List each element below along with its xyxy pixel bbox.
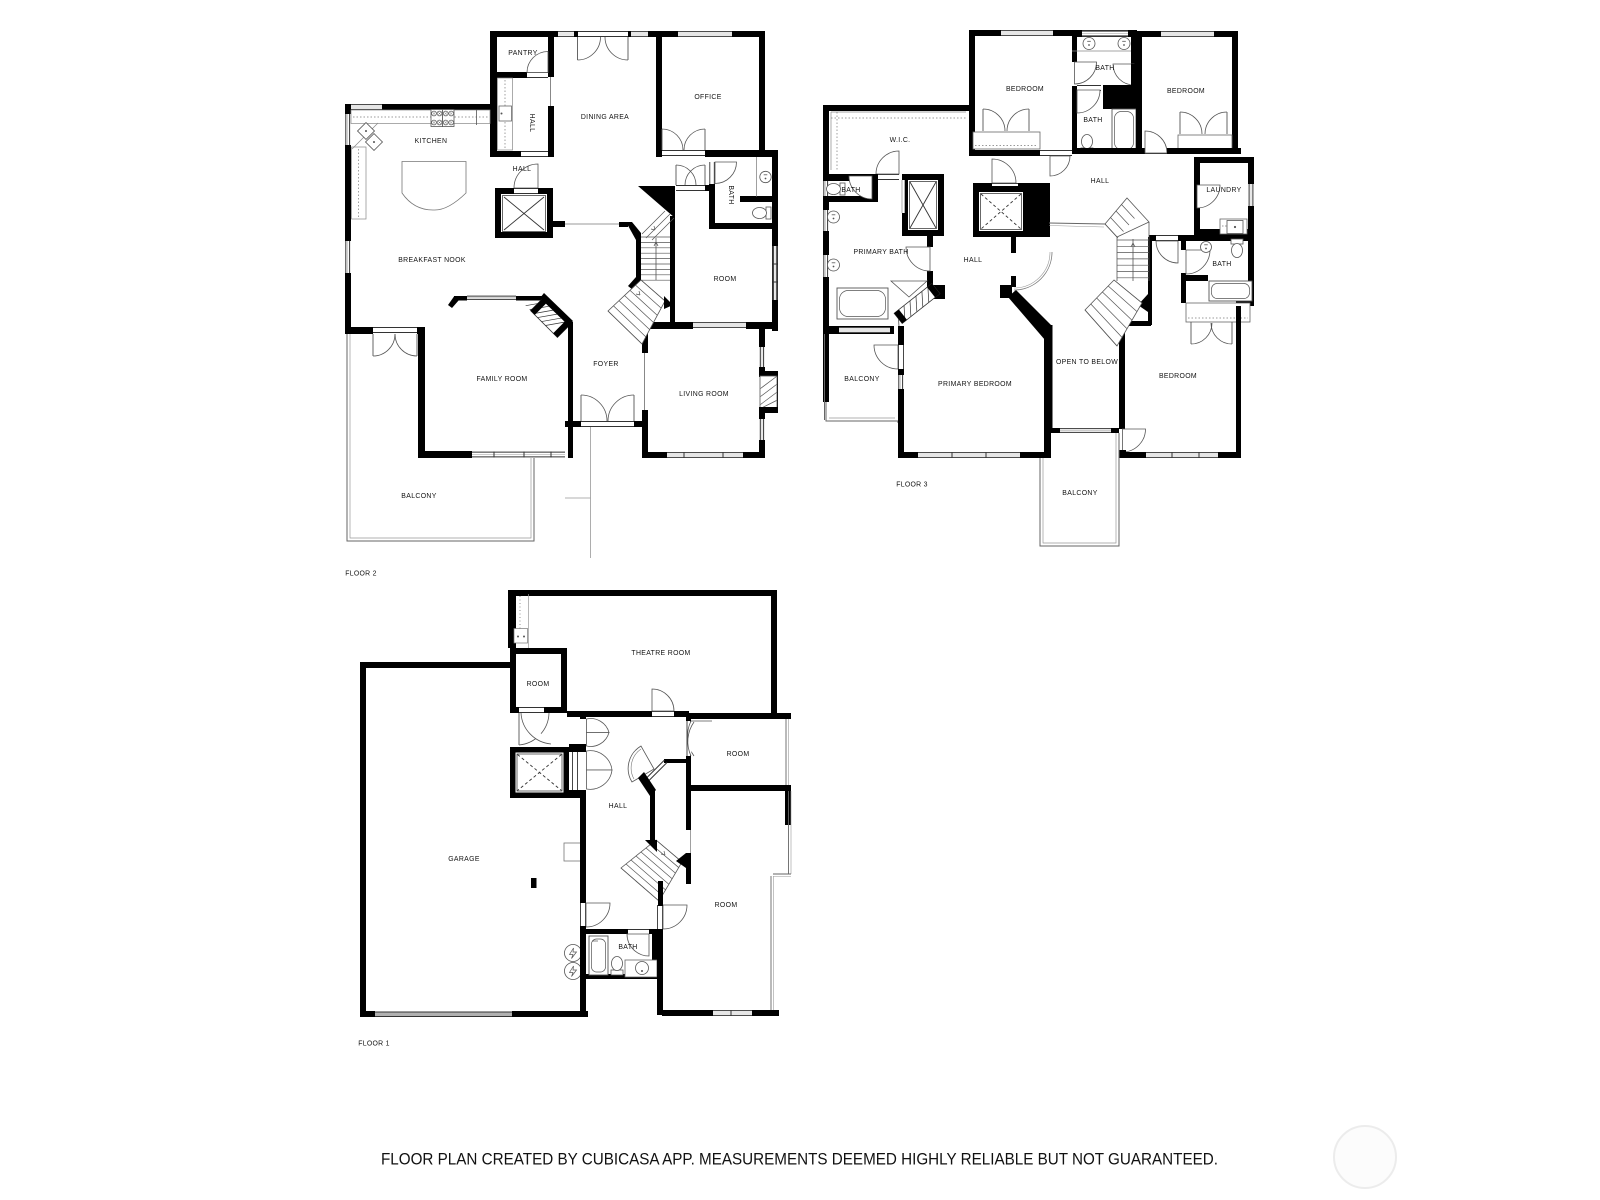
svg-text:BATH: BATH bbox=[618, 944, 637, 951]
svg-text:PANTRY: PANTRY bbox=[508, 50, 537, 57]
svg-text:HALL: HALL bbox=[964, 257, 983, 264]
svg-text:BEDROOM: BEDROOM bbox=[1006, 86, 1044, 93]
svg-text:BATH: BATH bbox=[841, 187, 860, 194]
svg-text:ROOM: ROOM bbox=[727, 751, 750, 758]
svg-text:FLOOR 2: FLOOR 2 bbox=[345, 571, 377, 578]
svg-text:HALL: HALL bbox=[528, 114, 535, 133]
svg-text:FLOOR PLAN CREATED BY CUBICASA: FLOOR PLAN CREATED BY CUBICASA APP. MEAS… bbox=[381, 1150, 1218, 1169]
svg-text:HALL: HALL bbox=[609, 803, 628, 810]
svg-text:BEDROOM: BEDROOM bbox=[1159, 373, 1197, 380]
svg-text:BALCONY: BALCONY bbox=[401, 493, 436, 500]
svg-text:BALCONY: BALCONY bbox=[844, 376, 879, 383]
svg-text:LIVING ROOM: LIVING ROOM bbox=[679, 391, 729, 398]
svg-text:HALL: HALL bbox=[1091, 178, 1110, 185]
svg-text:BATH: BATH bbox=[1095, 65, 1114, 72]
svg-text:FLOOR 1: FLOOR 1 bbox=[358, 1041, 390, 1048]
svg-text:BREAKFAST NOOK: BREAKFAST NOOK bbox=[398, 257, 466, 264]
svg-text:BALCONY: BALCONY bbox=[1062, 490, 1097, 497]
svg-text:ROOM: ROOM bbox=[527, 681, 550, 688]
svg-text:ROOM: ROOM bbox=[714, 276, 737, 283]
svg-text:BATH: BATH bbox=[727, 185, 734, 204]
svg-text:BEDROOM: BEDROOM bbox=[1167, 88, 1205, 95]
svg-text:PRIMARY BEDROOM: PRIMARY BEDROOM bbox=[938, 381, 1012, 388]
svg-text:FOYER: FOYER bbox=[593, 361, 619, 368]
svg-text:BATH: BATH bbox=[1212, 261, 1231, 268]
svg-text:DINING AREA: DINING AREA bbox=[581, 114, 629, 121]
svg-text:LAUNDRY: LAUNDRY bbox=[1206, 187, 1241, 194]
svg-text:W.I.C.: W.I.C. bbox=[890, 137, 911, 144]
svg-text:FAMILY ROOM: FAMILY ROOM bbox=[476, 376, 527, 383]
svg-text:KITCHEN: KITCHEN bbox=[415, 138, 448, 145]
svg-text:THEATRE ROOM: THEATRE ROOM bbox=[631, 650, 690, 657]
svg-text:OFFICE: OFFICE bbox=[694, 94, 721, 101]
svg-text:ROOM: ROOM bbox=[715, 902, 738, 909]
svg-text:HALL: HALL bbox=[513, 166, 532, 173]
svg-text:PRIMARY BATH: PRIMARY BATH bbox=[853, 249, 908, 256]
svg-text:GARAGE: GARAGE bbox=[448, 856, 480, 863]
svg-text:BATH: BATH bbox=[1083, 117, 1102, 124]
svg-text:FLOOR 3: FLOOR 3 bbox=[896, 482, 928, 489]
svg-text:OPEN TO BELOW: OPEN TO BELOW bbox=[1056, 359, 1118, 366]
